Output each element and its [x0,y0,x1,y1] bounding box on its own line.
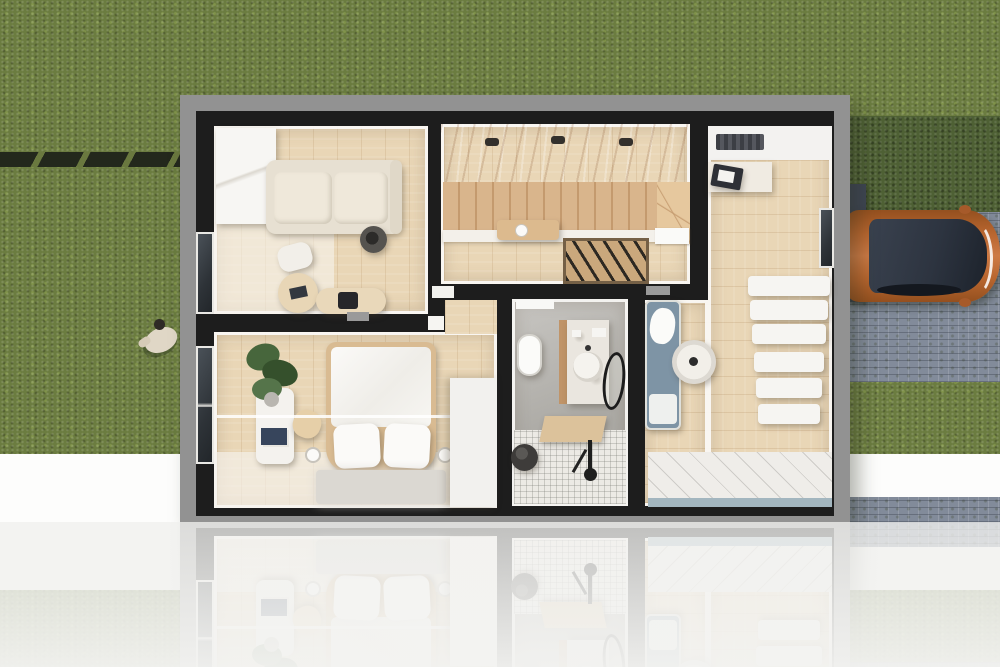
ceiling-spotlight-1 [485,138,499,146]
decor-bowl [515,224,528,237]
hedge [848,116,1000,212]
coffee-table-book [289,285,308,299]
single-bed-blanket-fold [649,394,677,424]
vanity-item-2 [572,330,581,337]
folded-clothes-2 [750,300,828,320]
sofa [266,160,402,234]
living-wall-vent [347,312,369,321]
hall-wall-vent [646,286,670,295]
sofa-cushion-right [334,172,388,224]
media-sideboard [316,288,386,314]
master-rug [316,470,446,504]
person-head [154,319,165,330]
bedside-lamp-left [305,447,321,463]
reflection [0,522,1000,667]
sloped-ceiling [441,124,690,182]
stairwell-opening-railing [563,238,649,284]
bathroom-door [516,300,554,309]
single-bed-pillow [648,307,677,346]
master-wardrobe [450,378,497,507]
desk-tray [264,392,279,407]
ceiling-spotlight-2 [551,136,565,144]
round-rug-center [689,357,698,366]
sports-car [843,206,1000,306]
master-windows [196,346,214,464]
car-mirror-bottom [959,298,971,307]
reflection-veil [0,522,1000,667]
car-mirror-top [959,205,971,214]
console-shelf [497,220,559,240]
master-door-leaf [428,316,444,330]
stepping-stone-path [0,152,182,167]
wooden-bench [539,416,607,442]
vanity-item-1 [592,328,606,337]
hall-door-to-bedroom [655,228,689,244]
round-sink [573,352,603,382]
faucet [585,345,591,351]
scene [0,0,1000,522]
bedroom-right-mat [648,498,832,507]
bath-stool [511,444,538,471]
floor-lamp [360,226,387,253]
ceiling-spotlight-3 [619,138,633,146]
bedroom-right-tiled-floor [648,452,832,502]
folded-clothes-3 [752,324,826,344]
folded-clothes-4 [754,352,824,372]
car-rear-window [877,284,961,296]
sofa-armrest [390,160,402,234]
master-pillow-left [333,423,381,469]
laptop-paper [717,170,735,184]
folded-clothes-1 [748,276,830,296]
sofa-cushion-left [274,172,332,224]
toilet [517,334,542,376]
shower-head [584,468,597,481]
hall-doorway-leaf [432,286,454,298]
round-rug [672,340,716,384]
coffee-table [278,273,318,313]
folded-clothes-6 [758,404,820,424]
master-bedroom-door-notch [445,300,497,334]
folded-clothes-5 [756,378,822,398]
desk-magazines [261,428,287,445]
ac-grille [716,134,764,150]
living-window [196,232,214,314]
bedroom-right-window [819,208,834,268]
car-windshield-shine [959,222,993,296]
person [138,312,182,364]
master-pillow-right [383,423,431,469]
floor-plan-rendering [0,0,1000,667]
speaker [338,292,358,309]
paver-walkway [848,497,1000,522]
